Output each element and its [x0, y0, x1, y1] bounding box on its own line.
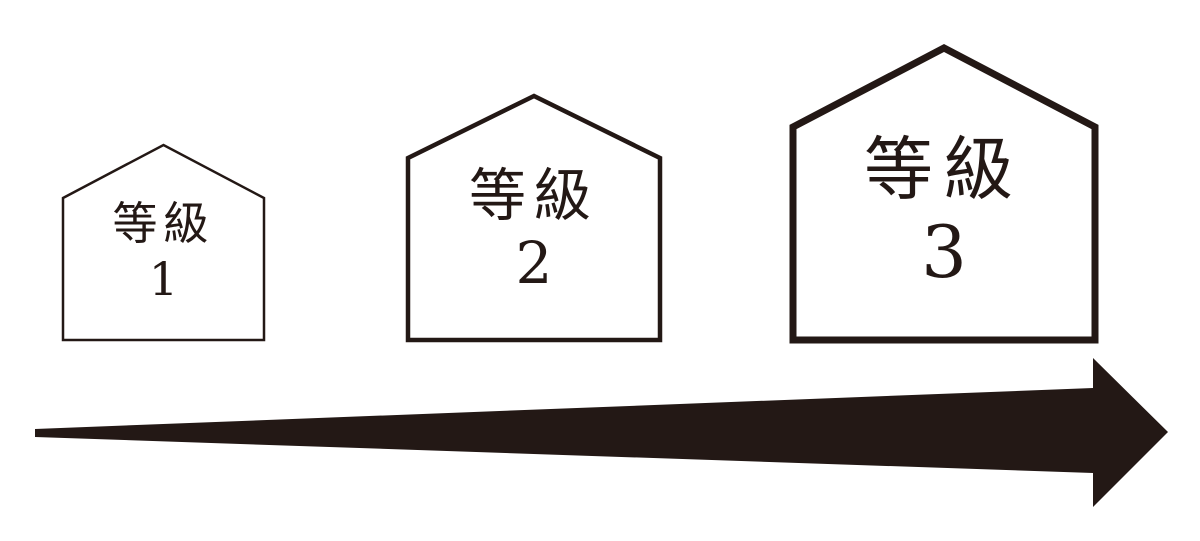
house3-grade-label: 等級 — [793, 136, 1095, 205]
house2-grade-label: 等級 — [408, 168, 660, 225]
right-arrow-icon — [35, 358, 1168, 507]
diagram-canvas: 等級 1 等級 2 等級 3 — [0, 0, 1200, 541]
house3-grade-number: 3 — [793, 216, 1095, 288]
house2-grade-number: 2 — [408, 234, 660, 292]
house1-grade-label: 等級 — [63, 201, 264, 246]
house1-grade-number: 1 — [63, 256, 264, 302]
